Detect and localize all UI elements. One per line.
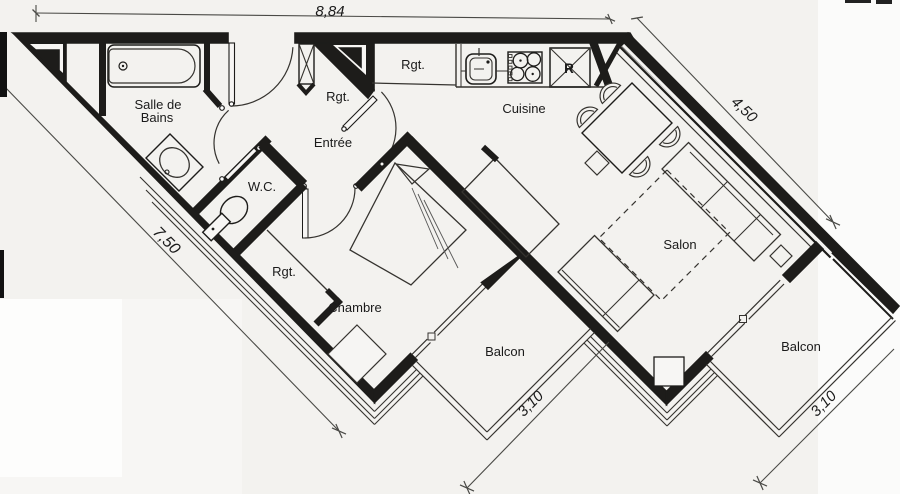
svg-text:W.C.: W.C.	[248, 179, 276, 194]
svg-text:Rgt.: Rgt.	[272, 264, 296, 279]
svg-text:8,84: 8,84	[315, 3, 344, 20]
svg-text:Salon: Salon	[663, 237, 696, 252]
svg-text:Balcon: Balcon	[485, 344, 525, 359]
svg-text:Cuisine: Cuisine	[502, 101, 545, 116]
svg-text:Entrée: Entrée	[314, 135, 352, 150]
svg-text:Bains: Bains	[141, 110, 174, 125]
svg-text:Rgt.: Rgt.	[326, 89, 350, 104]
svg-text:R: R	[564, 61, 574, 76]
svg-text:Balcon: Balcon	[781, 339, 821, 354]
svg-text:Rgt.: Rgt.	[401, 57, 425, 72]
svg-text:Chambre: Chambre	[328, 300, 381, 315]
